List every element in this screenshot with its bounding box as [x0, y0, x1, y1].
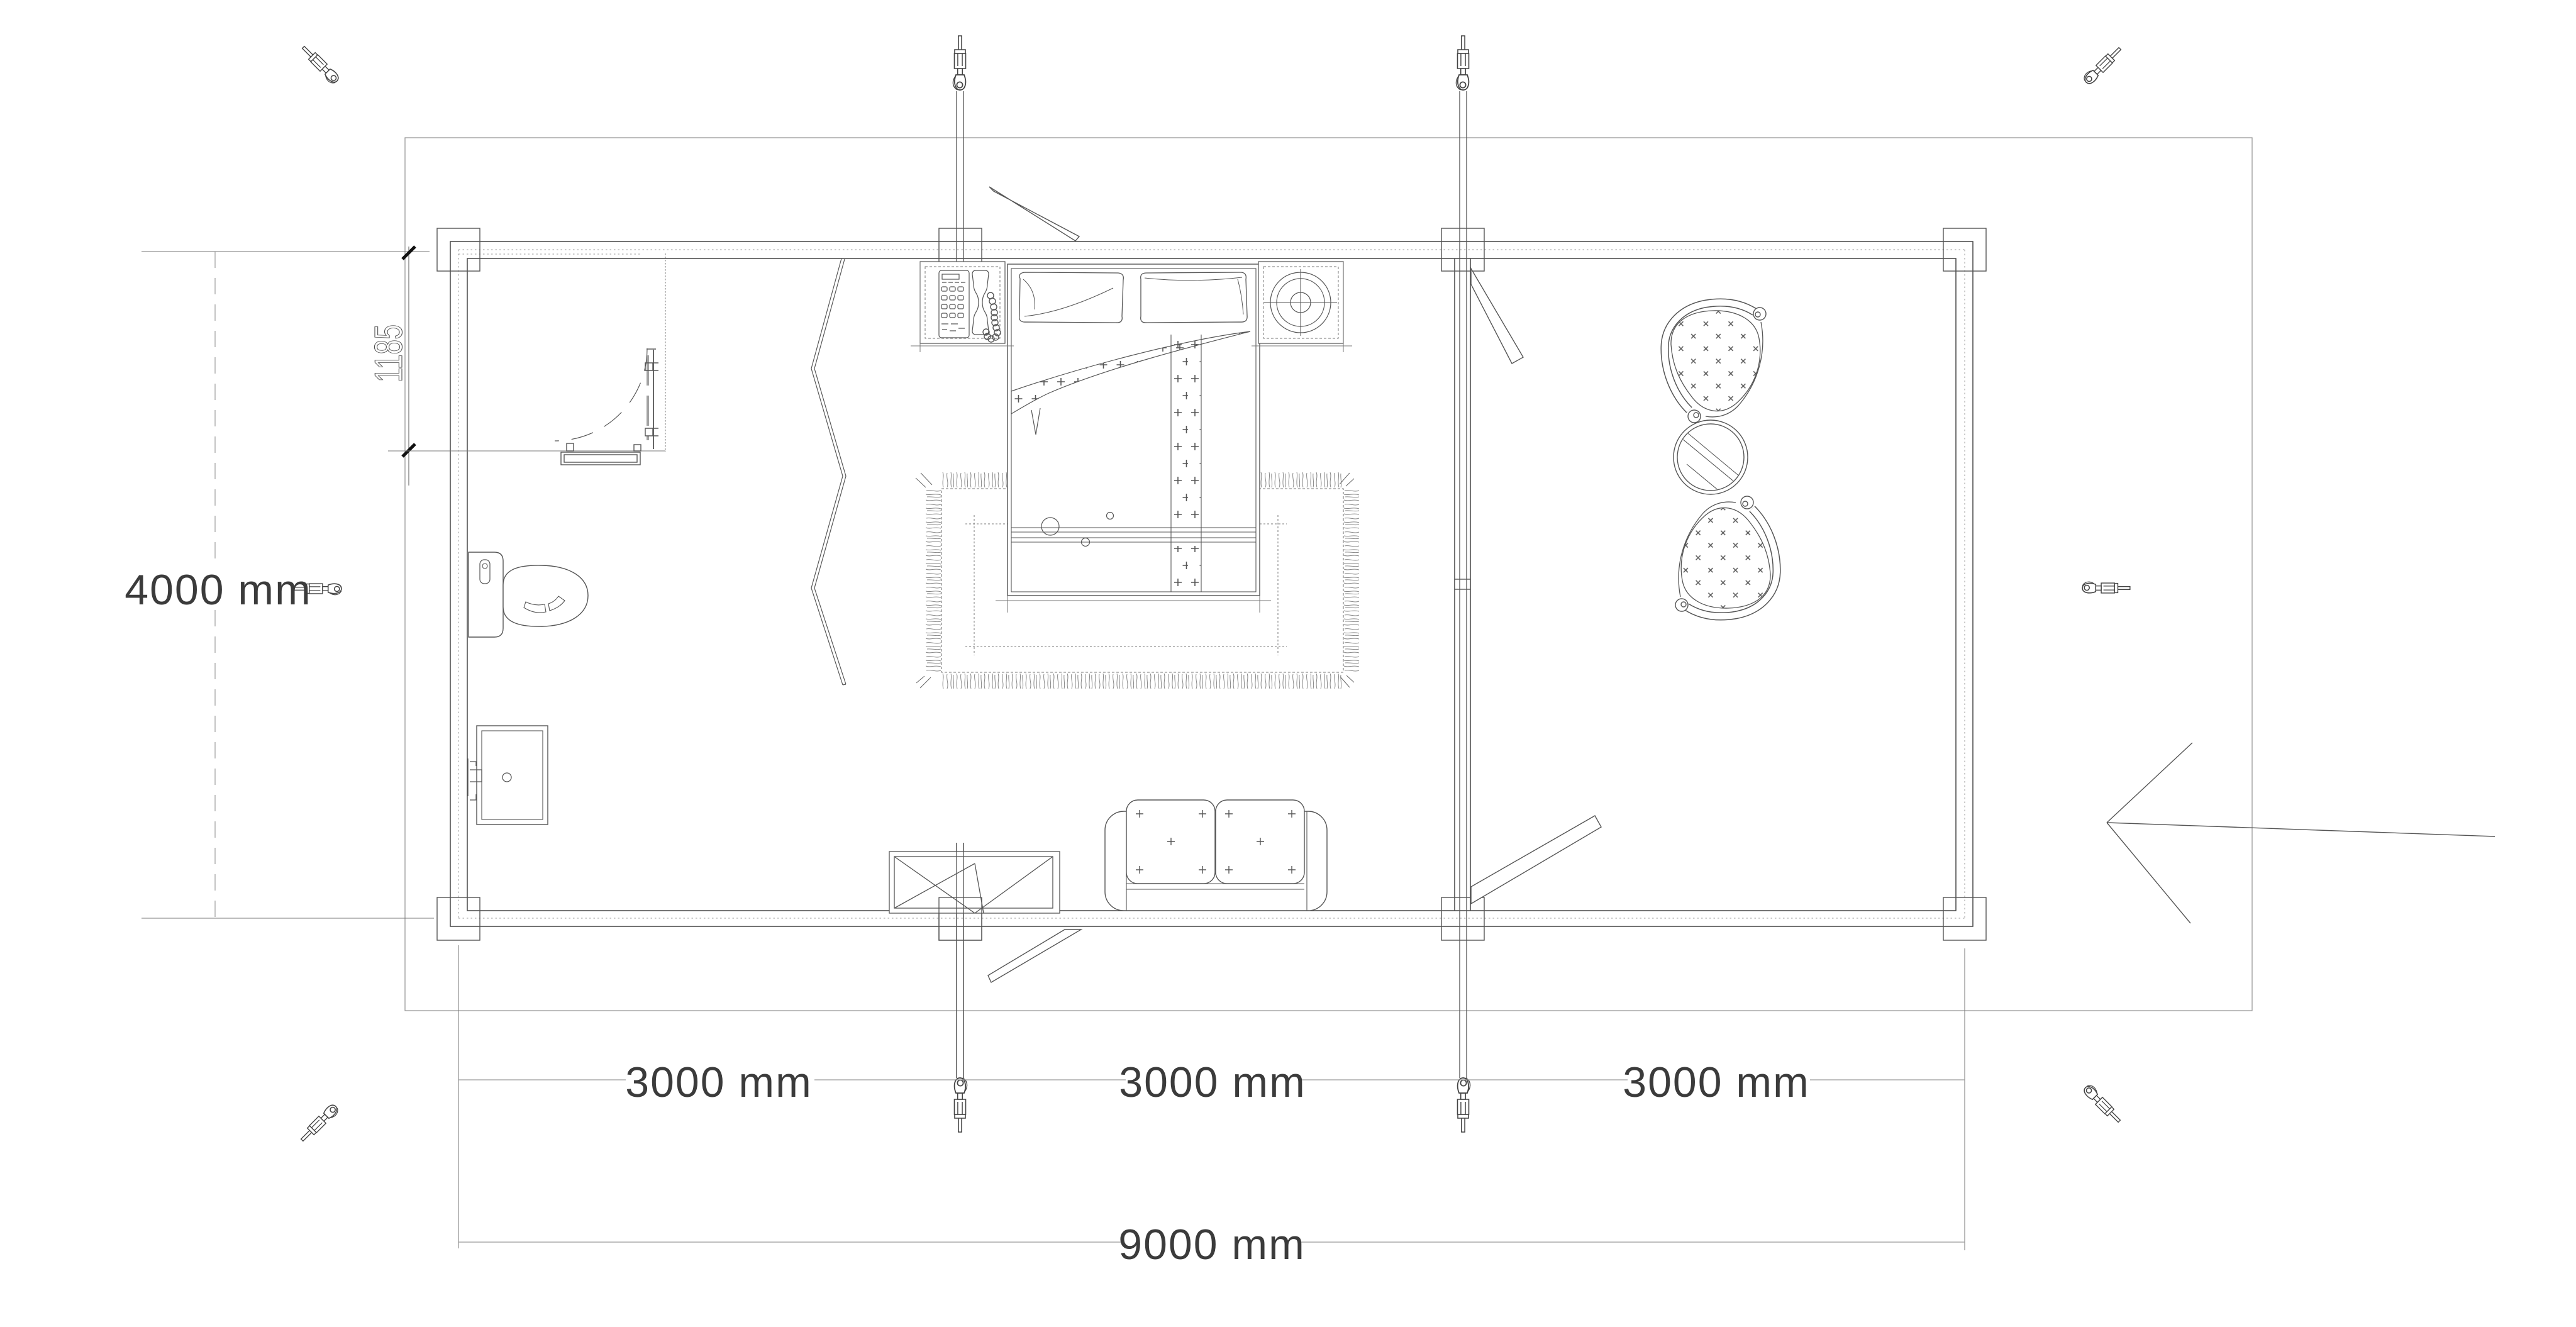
svg-text:3000 mm: 3000 mm	[1119, 1058, 1306, 1106]
svg-text:4000 mm: 4000 mm	[125, 566, 311, 614]
svg-text:1185: 1185	[367, 325, 411, 382]
svg-text:3000 mm: 3000 mm	[1623, 1058, 1809, 1106]
svg-text:3000 mm: 3000 mm	[625, 1058, 812, 1106]
svg-text:9000 mm: 9000 mm	[1118, 1221, 1305, 1269]
